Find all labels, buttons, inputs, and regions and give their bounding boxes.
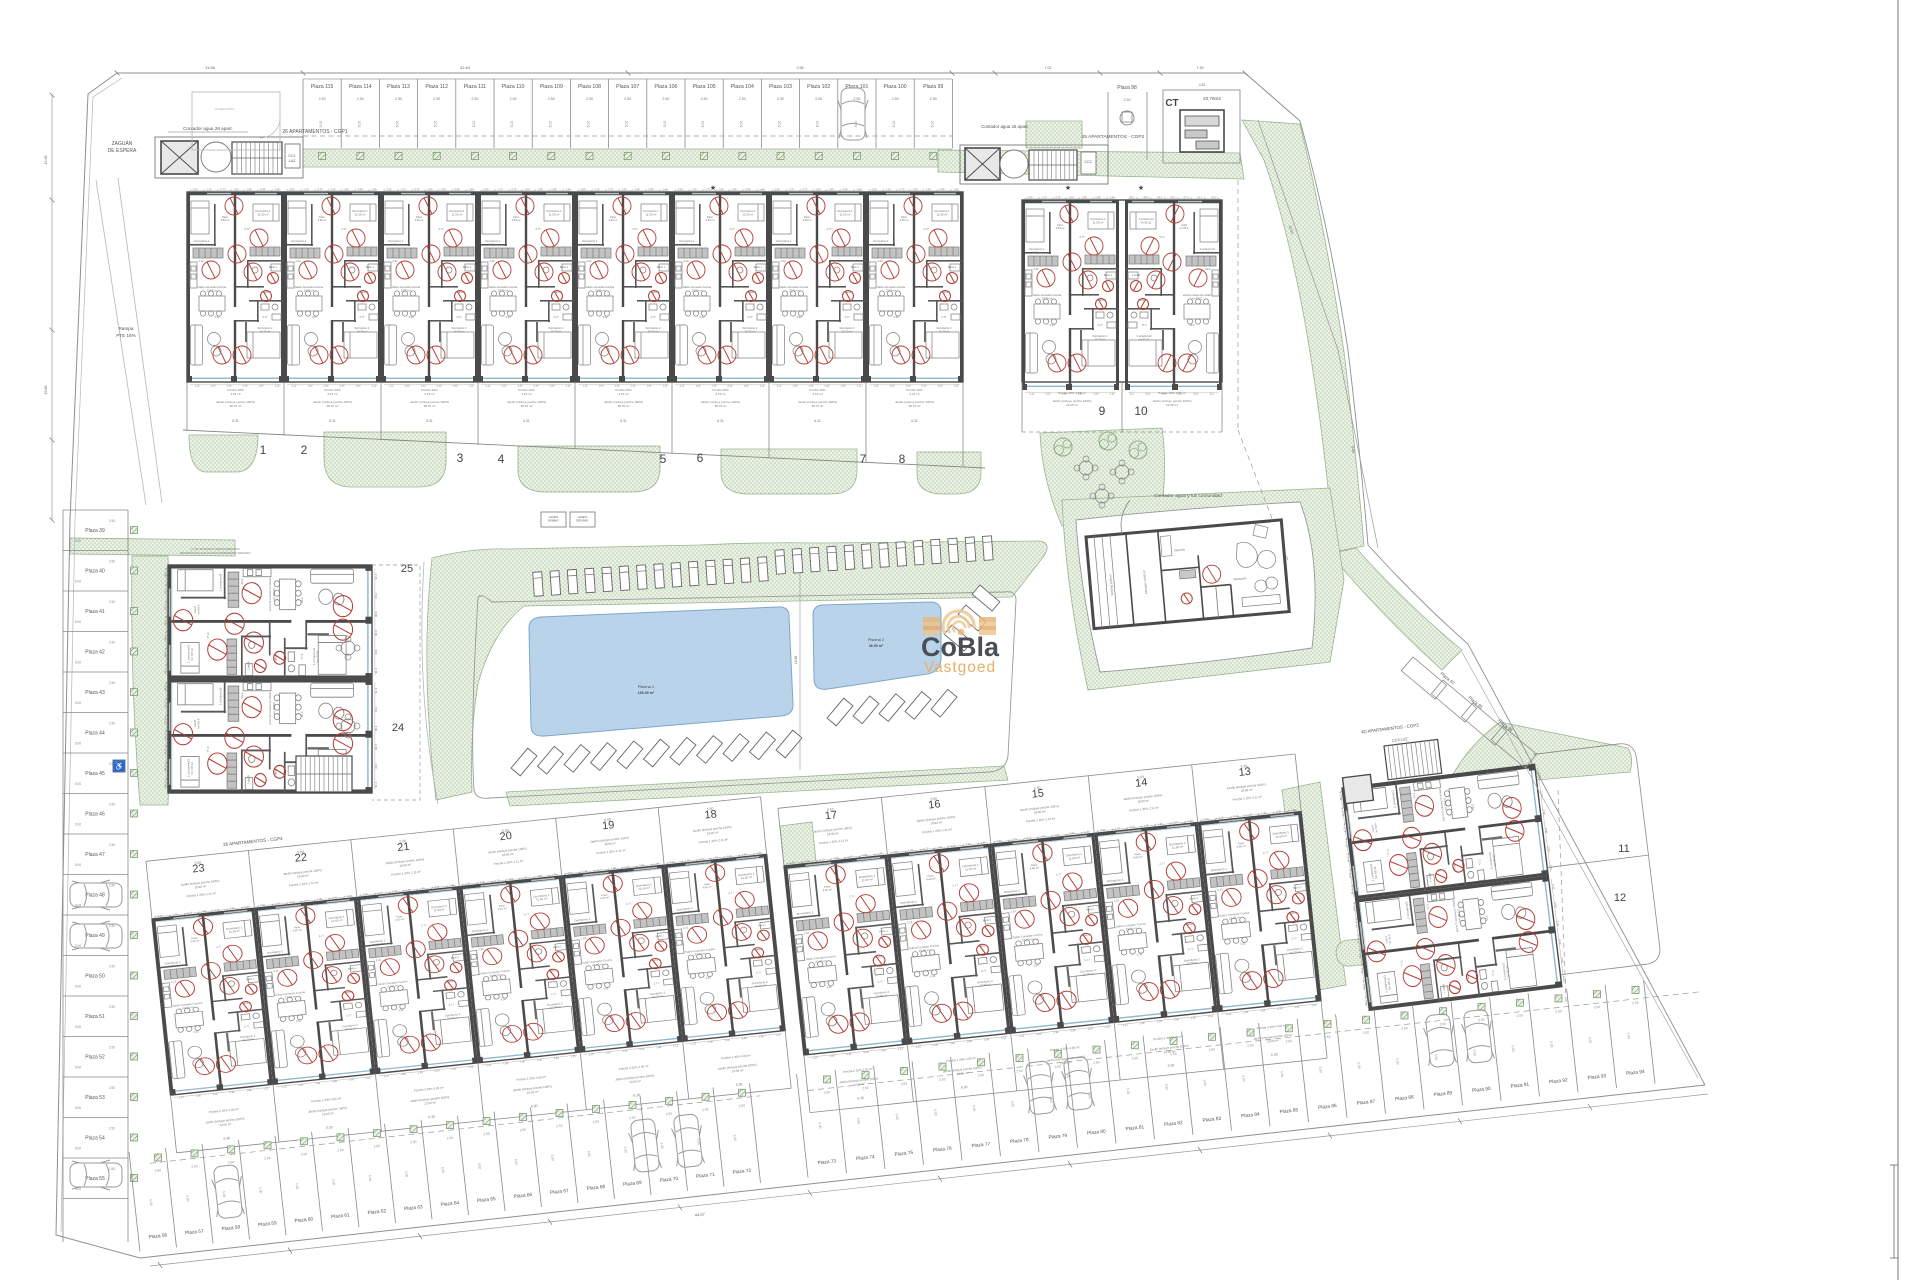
svg-text:5.00: 5.00 xyxy=(75,863,81,867)
svg-text:5.00: 5.00 xyxy=(75,620,81,624)
svg-text:5.00: 5.00 xyxy=(75,580,81,584)
svg-text:24: 24 xyxy=(392,722,404,734)
svg-text:38.70 m²: 38.70 m² xyxy=(618,404,630,408)
svg-text:2.50: 2.50 xyxy=(1478,1018,1485,1023)
svg-text:2.50: 2.50 xyxy=(109,641,115,645)
svg-text:5.00: 5.00 xyxy=(701,121,705,128)
svg-text:5.00: 5.00 xyxy=(75,782,81,786)
svg-text:5.00: 5.00 xyxy=(933,1109,938,1116)
svg-text:Piscina 1: Piscina 1 xyxy=(638,684,655,689)
svg-text:2.50: 2.50 xyxy=(410,1140,417,1145)
svg-text:5.00: 5.00 xyxy=(972,1105,977,1112)
svg-text:4.15 m²: 4.15 m² xyxy=(909,392,919,396)
svg-text:Plaza 55: Plaza 55 xyxy=(85,1176,105,1182)
svg-text:Plaza 108: Plaza 108 xyxy=(578,84,601,90)
svg-text:(*) SE SITUARÁN CERRAMIENTOS: (*) SE SITUARÁN CERRAMIENTOS xyxy=(191,547,240,551)
svg-text:2.50: 2.50 xyxy=(1247,1043,1254,1048)
svg-text:5.00: 5.00 xyxy=(625,121,629,128)
svg-text:Plaza 99: Plaza 99 xyxy=(923,84,943,90)
svg-text:4.83: 4.83 xyxy=(1199,83,1206,87)
svg-text:106.30 m²: 106.30 m² xyxy=(638,691,655,695)
svg-text:25 APARTAMENTOS - CGP2: 25 APARTAMENTOS - CGP2 xyxy=(1082,134,1145,140)
svg-text:2.50: 2.50 xyxy=(1363,1030,1370,1035)
svg-text:20,76m2: 20,76m2 xyxy=(1203,96,1221,101)
svg-text:Plaza 54: Plaza 54 xyxy=(85,1136,105,1142)
svg-text:5.00: 5.00 xyxy=(319,121,323,128)
svg-text:★: ★ xyxy=(1138,184,1144,192)
svg-text:6.30: 6.30 xyxy=(326,1125,333,1130)
svg-text:5.00: 5.00 xyxy=(818,1122,823,1129)
svg-text:5.00: 5.00 xyxy=(396,121,400,128)
svg-text:5.00: 5.00 xyxy=(1588,1037,1593,1044)
svg-text:5.50: 5.50 xyxy=(707,807,714,812)
svg-text:2.50: 2.50 xyxy=(319,97,326,101)
svg-text:6: 6 xyxy=(697,451,704,465)
svg-text:5.00: 5.00 xyxy=(895,1113,900,1120)
svg-text:5.00: 5.00 xyxy=(778,121,782,128)
svg-text:2.50: 2.50 xyxy=(483,1132,490,1137)
svg-text:2.50: 2.50 xyxy=(109,681,115,685)
svg-text:Plaza 46: Plaza 46 xyxy=(85,812,105,818)
svg-text:2.50: 2.50 xyxy=(892,97,899,101)
svg-text:Contador agua 26 apart.: Contador agua 26 apart. xyxy=(183,126,233,131)
svg-text:2.50: 2.50 xyxy=(939,1077,946,1082)
svg-text:2.50: 2.50 xyxy=(109,1046,115,1050)
svg-text:5.00: 5.00 xyxy=(434,121,438,128)
svg-text:5.00: 5.00 xyxy=(1395,1058,1400,1065)
svg-text:2.50: 2.50 xyxy=(1209,1047,1216,1052)
svg-text:5.00: 5.00 xyxy=(1164,1084,1169,1091)
svg-text:5.00: 5.00 xyxy=(550,1155,555,1162)
svg-text:15.86: 15.86 xyxy=(44,386,48,395)
svg-text:5.00: 5.00 xyxy=(623,1146,628,1153)
svg-text:5.00: 5.00 xyxy=(930,121,934,128)
svg-text:5.00: 5.00 xyxy=(510,121,514,128)
svg-text:5.00: 5.00 xyxy=(1549,1041,1554,1048)
svg-text:5.00: 5.00 xyxy=(75,985,81,989)
svg-text:2.50: 2.50 xyxy=(1440,1022,1447,1027)
svg-text:38.70 m²: 38.70 m² xyxy=(424,404,436,408)
svg-text:5.00: 5.00 xyxy=(368,1175,373,1182)
svg-text:2.50: 2.50 xyxy=(702,1107,709,1112)
svg-text:Plaza 103: Plaza 103 xyxy=(769,84,792,90)
svg-text:7: 7 xyxy=(860,452,867,466)
svg-text:CT: CT xyxy=(1165,98,1178,109)
svg-text:1: 1 xyxy=(260,443,267,457)
svg-text:5.50: 5.50 xyxy=(930,797,937,802)
svg-text:2.50: 2.50 xyxy=(1632,1001,1639,1006)
svg-text:4: 4 xyxy=(498,452,505,466)
svg-text:Plaza 51: Plaza 51 xyxy=(85,1014,105,1020)
svg-text:2.50: 2.50 xyxy=(447,1136,454,1141)
svg-text:ZAGUÁN: ZAGUÁN xyxy=(112,140,133,147)
svg-text:2.50: 2.50 xyxy=(662,97,669,101)
svg-text:5.00: 5.00 xyxy=(75,661,81,665)
svg-text:12: 12 xyxy=(1614,892,1626,904)
svg-text:CC1: CC1 xyxy=(288,154,295,158)
svg-text:2.50: 2.50 xyxy=(109,843,115,847)
svg-text:38.70 m²: 38.70 m² xyxy=(521,404,533,408)
svg-text:2.50: 2.50 xyxy=(191,1164,198,1169)
svg-text:2.50: 2.50 xyxy=(777,97,784,101)
svg-text:2.50: 2.50 xyxy=(357,97,364,101)
svg-text:5.00: 5.00 xyxy=(587,121,591,128)
svg-text:5.00: 5.00 xyxy=(1126,1088,1131,1095)
svg-text:5.00: 5.00 xyxy=(514,1159,519,1166)
svg-text:5.00: 5.00 xyxy=(892,121,896,128)
svg-text:6.30: 6.30 xyxy=(1271,1052,1278,1057)
svg-text:2.50: 2.50 xyxy=(109,1167,115,1171)
svg-text:Plaza 111: Plaza 111 xyxy=(464,84,486,90)
svg-text:CoBla: CoBla xyxy=(921,632,1000,662)
svg-text:Plaza 110: Plaza 110 xyxy=(502,84,525,90)
svg-text:2.50: 2.50 xyxy=(1286,1039,1293,1044)
svg-text:Contador agua 25 apart.: Contador agua 25 apart. xyxy=(981,124,1029,129)
svg-text:5.00: 5.00 xyxy=(75,539,81,543)
svg-text:6.30: 6.30 xyxy=(1167,1063,1174,1068)
svg-text:9: 9 xyxy=(1099,404,1106,418)
svg-text:6.31: 6.31 xyxy=(523,419,530,423)
svg-text:4.15 m²: 4.15 m² xyxy=(812,392,822,396)
svg-text:2.50: 2.50 xyxy=(395,97,402,101)
svg-text:5.50: 5.50 xyxy=(1241,764,1248,769)
svg-text:♿: ♿ xyxy=(114,761,124,771)
svg-text:Plaza 43: Plaza 43 xyxy=(85,690,105,696)
svg-text:6.31: 6.31 xyxy=(426,419,433,423)
svg-text:Plaza 53: Plaza 53 xyxy=(85,1095,105,1101)
svg-text:2.50: 2.50 xyxy=(978,1073,985,1078)
svg-text:Porche 20% 4.15 m²: Porche 20% 4.15 m² xyxy=(1158,391,1185,395)
svg-text:Plaza 107: Plaza 107 xyxy=(616,84,639,90)
svg-text:2.50: 2.50 xyxy=(901,1082,908,1087)
svg-text:DEPURAD.: DEPURAD. xyxy=(576,520,589,523)
svg-text:2.50: 2.50 xyxy=(930,97,937,101)
svg-text:Plaza 42: Plaza 42 xyxy=(85,650,105,656)
svg-text:38.70 m²: 38.70 m² xyxy=(715,404,727,408)
svg-text:2.50: 2.50 xyxy=(739,1103,746,1108)
svg-text:2.50: 2.50 xyxy=(853,97,860,101)
svg-text:Plaza 101: Plaza 101 xyxy=(845,84,868,90)
svg-text:CC2: CC2 xyxy=(1084,160,1091,164)
svg-text:2.50: 2.50 xyxy=(109,924,115,928)
svg-text:2.50: 2.50 xyxy=(155,1168,162,1173)
svg-text:2.50: 2.50 xyxy=(548,97,555,101)
svg-text:4.15 m²: 4.15 m² xyxy=(327,392,337,396)
svg-text:38.70 m²: 38.70 m² xyxy=(327,404,339,408)
svg-text:Plaza 48: Plaza 48 xyxy=(85,893,105,899)
svg-text:PTE 16%: PTE 16% xyxy=(116,333,135,338)
svg-text:Plaza 49: Plaza 49 xyxy=(85,933,105,939)
svg-text:6.31: 6.31 xyxy=(717,419,724,423)
svg-text:5.00: 5.00 xyxy=(472,121,476,128)
svg-text:5.50: 5.50 xyxy=(1034,786,1041,791)
svg-text:4.15 m²: 4.15 m² xyxy=(521,392,531,396)
svg-text:Umbral 0.00 m: Umbral 0.00 m xyxy=(215,107,235,111)
svg-text:Plaza 100: Plaza 100 xyxy=(884,84,907,90)
svg-text:5.00: 5.00 xyxy=(660,1142,665,1149)
svg-text:6.31: 6.31 xyxy=(911,419,918,423)
svg-text:3: 3 xyxy=(457,451,464,465)
svg-text:Plaza 106: Plaza 106 xyxy=(654,84,677,90)
svg-text:2.50: 2.50 xyxy=(1016,1069,1023,1074)
svg-text:22.25 m²: 22.25 m² xyxy=(1166,403,1178,407)
svg-text:4.15 m²: 4.15 m² xyxy=(424,392,434,396)
svg-text:2.50: 2.50 xyxy=(1055,1064,1062,1069)
svg-text:36.90 m²: 36.90 m² xyxy=(869,644,884,648)
svg-text:13.08: 13.08 xyxy=(44,156,48,165)
svg-text:2: 2 xyxy=(301,443,308,457)
svg-text:5.00: 5.00 xyxy=(75,823,81,827)
svg-text:5.00: 5.00 xyxy=(75,1025,81,1029)
svg-text:2.50: 2.50 xyxy=(862,1086,869,1091)
svg-text:2.50: 2.50 xyxy=(1401,1026,1408,1031)
svg-text:2.98: 2.98 xyxy=(797,66,804,70)
svg-text:2.50: 2.50 xyxy=(109,884,115,888)
svg-text:Plaza 47: Plaza 47 xyxy=(85,852,105,858)
svg-text:2.50: 2.50 xyxy=(433,97,440,101)
svg-text:6.31: 6.31 xyxy=(814,419,821,423)
svg-text:5.00: 5.00 xyxy=(75,1106,81,1110)
svg-text:5.00: 5.00 xyxy=(258,1187,263,1194)
svg-text:5.00: 5.00 xyxy=(816,121,820,128)
svg-text:2.50: 2.50 xyxy=(1124,98,1131,102)
svg-text:Plaza 115: Plaza 115 xyxy=(311,84,334,90)
svg-text:Plaza 114: Plaza 114 xyxy=(349,84,372,90)
svg-text:6.31: 6.31 xyxy=(232,419,239,423)
svg-text:Plaza 98: Plaza 98 xyxy=(1117,85,1137,91)
svg-text:2.50: 2.50 xyxy=(109,965,115,969)
svg-text:5.00: 5.00 xyxy=(1318,1067,1323,1074)
svg-text:38.70 m²: 38.70 m² xyxy=(230,404,242,408)
svg-text:2.50: 2.50 xyxy=(1517,1013,1524,1018)
svg-text:5.00: 5.00 xyxy=(357,121,361,128)
svg-text:5.00: 5.00 xyxy=(75,742,81,746)
svg-text:Plaza 40: Plaza 40 xyxy=(85,569,105,575)
svg-text:2.50: 2.50 xyxy=(471,97,478,101)
svg-text:2.50: 2.50 xyxy=(109,803,115,807)
svg-text:2.50: 2.50 xyxy=(109,600,115,604)
svg-text:Plaza 109: Plaza 109 xyxy=(540,84,563,90)
svg-text:Plaza 113: Plaza 113 xyxy=(387,84,410,90)
svg-text:4.15 m²: 4.15 m² xyxy=(230,392,240,396)
svg-text:2.50: 2.50 xyxy=(510,97,517,101)
svg-text:BOMBAS: BOMBAS xyxy=(548,520,559,523)
svg-text:6.30: 6.30 xyxy=(961,1085,968,1090)
svg-text:Plaza 105: Plaza 105 xyxy=(693,84,716,90)
svg-text:2.50: 2.50 xyxy=(624,97,631,101)
svg-text:5.50: 5.50 xyxy=(194,861,201,866)
svg-text:5.00: 5.00 xyxy=(185,1195,190,1202)
svg-text:5.00: 5.00 xyxy=(1626,1032,1631,1039)
svg-text:Plaza 44: Plaza 44 xyxy=(85,731,105,737)
svg-text:DE ESPERA: DE ESPERA xyxy=(108,148,137,154)
svg-text:Porche 20% 4.15 m²: Porche 20% 4.15 m² xyxy=(1058,391,1085,395)
svg-text:2.50: 2.50 xyxy=(739,97,746,101)
svg-text:5.00: 5.00 xyxy=(1280,1071,1285,1078)
svg-text:2.50: 2.50 xyxy=(1132,1056,1139,1061)
svg-text:Piscina 2: Piscina 2 xyxy=(868,637,885,642)
svg-text:5.00: 5.00 xyxy=(75,944,81,948)
svg-text:2.50: 2.50 xyxy=(701,97,708,101)
svg-text:5.50: 5.50 xyxy=(827,807,834,812)
svg-text:5.00: 5.00 xyxy=(1511,1045,1516,1052)
svg-text:5.50: 5.50 xyxy=(604,817,611,822)
svg-text:6.30: 6.30 xyxy=(428,1115,435,1120)
svg-text:Plaza 102: Plaza 102 xyxy=(807,84,830,90)
svg-text:5: 5 xyxy=(660,452,667,466)
svg-text:42.64: 42.64 xyxy=(460,65,471,70)
svg-text:Plaza 104: Plaza 104 xyxy=(731,84,754,90)
svg-text:2.50: 2.50 xyxy=(228,1160,235,1165)
svg-text:5.00: 5.00 xyxy=(548,121,552,128)
svg-text:2.50: 2.50 xyxy=(586,97,593,101)
svg-text:Plaza 45: Plaza 45 xyxy=(85,771,105,777)
svg-text:★: ★ xyxy=(710,184,716,192)
svg-text:5.00: 5.00 xyxy=(663,121,667,128)
svg-text:6.31: 6.31 xyxy=(620,419,627,423)
svg-text:2.50: 2.50 xyxy=(109,1127,115,1131)
svg-text:5.00: 5.00 xyxy=(75,1147,81,1151)
svg-text:38.70 m²: 38.70 m² xyxy=(909,404,921,408)
svg-text:5.00: 5.00 xyxy=(1203,1079,1208,1086)
svg-text:2.50: 2.50 xyxy=(1170,1052,1177,1057)
svg-text:LUZ: LUZ xyxy=(289,159,297,163)
svg-text:6.30: 6.30 xyxy=(736,1082,743,1087)
svg-text:5.00: 5.00 xyxy=(587,1151,592,1158)
svg-text:Plaza 52: Plaza 52 xyxy=(85,1055,105,1061)
svg-text:6.30: 6.30 xyxy=(531,1104,538,1109)
svg-text:2.50: 2.50 xyxy=(109,1005,115,1009)
svg-text:5.00: 5.00 xyxy=(295,1183,300,1190)
svg-text:26 APARTAMENTOS - CGP1: 26 APARTAMENTOS - CGP1 xyxy=(282,129,347,135)
svg-text:2.50: 2.50 xyxy=(1324,1035,1331,1040)
svg-text:6.31: 6.31 xyxy=(329,419,336,423)
svg-text:5.00: 5.00 xyxy=(1357,1062,1362,1069)
svg-text:4.15 m²: 4.15 m² xyxy=(618,392,628,396)
svg-text:5.00: 5.00 xyxy=(222,1191,227,1198)
svg-text:2.50: 2.50 xyxy=(374,1144,381,1149)
svg-text:22.25 m²: 22.25 m² xyxy=(1066,403,1078,407)
svg-text:2.50: 2.50 xyxy=(1594,1005,1601,1010)
svg-text:2.50: 2.50 xyxy=(337,1148,344,1153)
svg-text:5.00: 5.00 xyxy=(1472,1049,1477,1056)
svg-text:5.00: 5.00 xyxy=(75,1066,81,1070)
svg-text:11.66: 11.66 xyxy=(205,65,215,70)
svg-text:38.70 m²: 38.70 m² xyxy=(812,404,824,408)
svg-text:2.50: 2.50 xyxy=(301,1152,308,1157)
svg-text:10: 10 xyxy=(1134,404,1148,418)
svg-text:5.00: 5.00 xyxy=(404,1171,409,1178)
svg-text:5.00: 5.00 xyxy=(331,1179,336,1186)
svg-text:2.50: 2.50 xyxy=(666,1112,673,1117)
svg-text:5.50: 5.50 xyxy=(399,839,406,844)
svg-text:Plaza 39: Plaza 39 xyxy=(85,528,105,534)
svg-text:6.30: 6.30 xyxy=(223,1136,230,1141)
svg-text:2.50: 2.50 xyxy=(815,97,822,101)
svg-text:Rampa: Rampa xyxy=(119,326,134,331)
svg-text:2.50: 2.50 xyxy=(109,519,115,523)
svg-text:5.00: 5.00 xyxy=(441,1167,446,1174)
svg-text:2.50: 2.50 xyxy=(593,1120,600,1125)
svg-text:11: 11 xyxy=(1618,843,1629,855)
svg-text:★: ★ xyxy=(1065,184,1071,192)
svg-text:7.02: 7.02 xyxy=(1045,66,1052,70)
svg-text:5.50: 5.50 xyxy=(297,850,304,855)
svg-text:7.30: 7.30 xyxy=(1197,66,1204,70)
svg-text:2.50: 2.50 xyxy=(1555,1009,1562,1014)
svg-text:6.30: 6.30 xyxy=(633,1093,640,1098)
svg-text:2.50: 2.50 xyxy=(264,1156,271,1161)
svg-text:5.00: 5.00 xyxy=(477,1163,482,1170)
svg-text:5.00: 5.00 xyxy=(1434,1054,1439,1061)
svg-text:5.00: 5.00 xyxy=(733,1134,738,1141)
svg-text:6.30: 6.30 xyxy=(857,1096,864,1101)
svg-text:2.50: 2.50 xyxy=(629,1116,636,1121)
svg-text:2.50: 2.50 xyxy=(1093,1060,1100,1065)
svg-text:Contador agua y luz comunidad: Contador agua y luz comunidad xyxy=(1154,493,1222,499)
svg-text:25: 25 xyxy=(401,563,413,575)
svg-text:Plaza 112: Plaza 112 xyxy=(425,84,448,90)
svg-text:2.50: 2.50 xyxy=(109,560,115,564)
svg-text:5.50: 5.50 xyxy=(502,828,509,833)
svg-text:2.50: 2.50 xyxy=(109,722,115,726)
svg-text:Vastgoed: Vastgoed xyxy=(924,659,996,676)
svg-text:5.50: 5.50 xyxy=(1137,775,1144,780)
svg-text:Plaza 50: Plaza 50 xyxy=(85,974,105,980)
svg-text:5.00: 5.00 xyxy=(1010,1101,1015,1108)
svg-text:4.15 m²: 4.15 m² xyxy=(715,392,725,396)
svg-text:15.96: 15.96 xyxy=(794,656,798,665)
svg-text:Plaza 41: Plaza 41 xyxy=(85,609,105,615)
svg-text:2.50: 2.50 xyxy=(824,1090,831,1095)
svg-text:5.00: 5.00 xyxy=(75,701,81,705)
svg-text:2.50: 2.50 xyxy=(520,1128,527,1133)
svg-text:5.00: 5.00 xyxy=(149,1199,154,1206)
svg-text:5.00: 5.00 xyxy=(856,1118,861,1125)
svg-text:2.50: 2.50 xyxy=(556,1124,563,1129)
svg-text:2.50: 2.50 xyxy=(109,1086,115,1090)
svg-text:8: 8 xyxy=(899,452,906,466)
svg-text:5.00: 5.00 xyxy=(1241,1075,1246,1082)
svg-text:5.00: 5.00 xyxy=(739,121,743,128)
